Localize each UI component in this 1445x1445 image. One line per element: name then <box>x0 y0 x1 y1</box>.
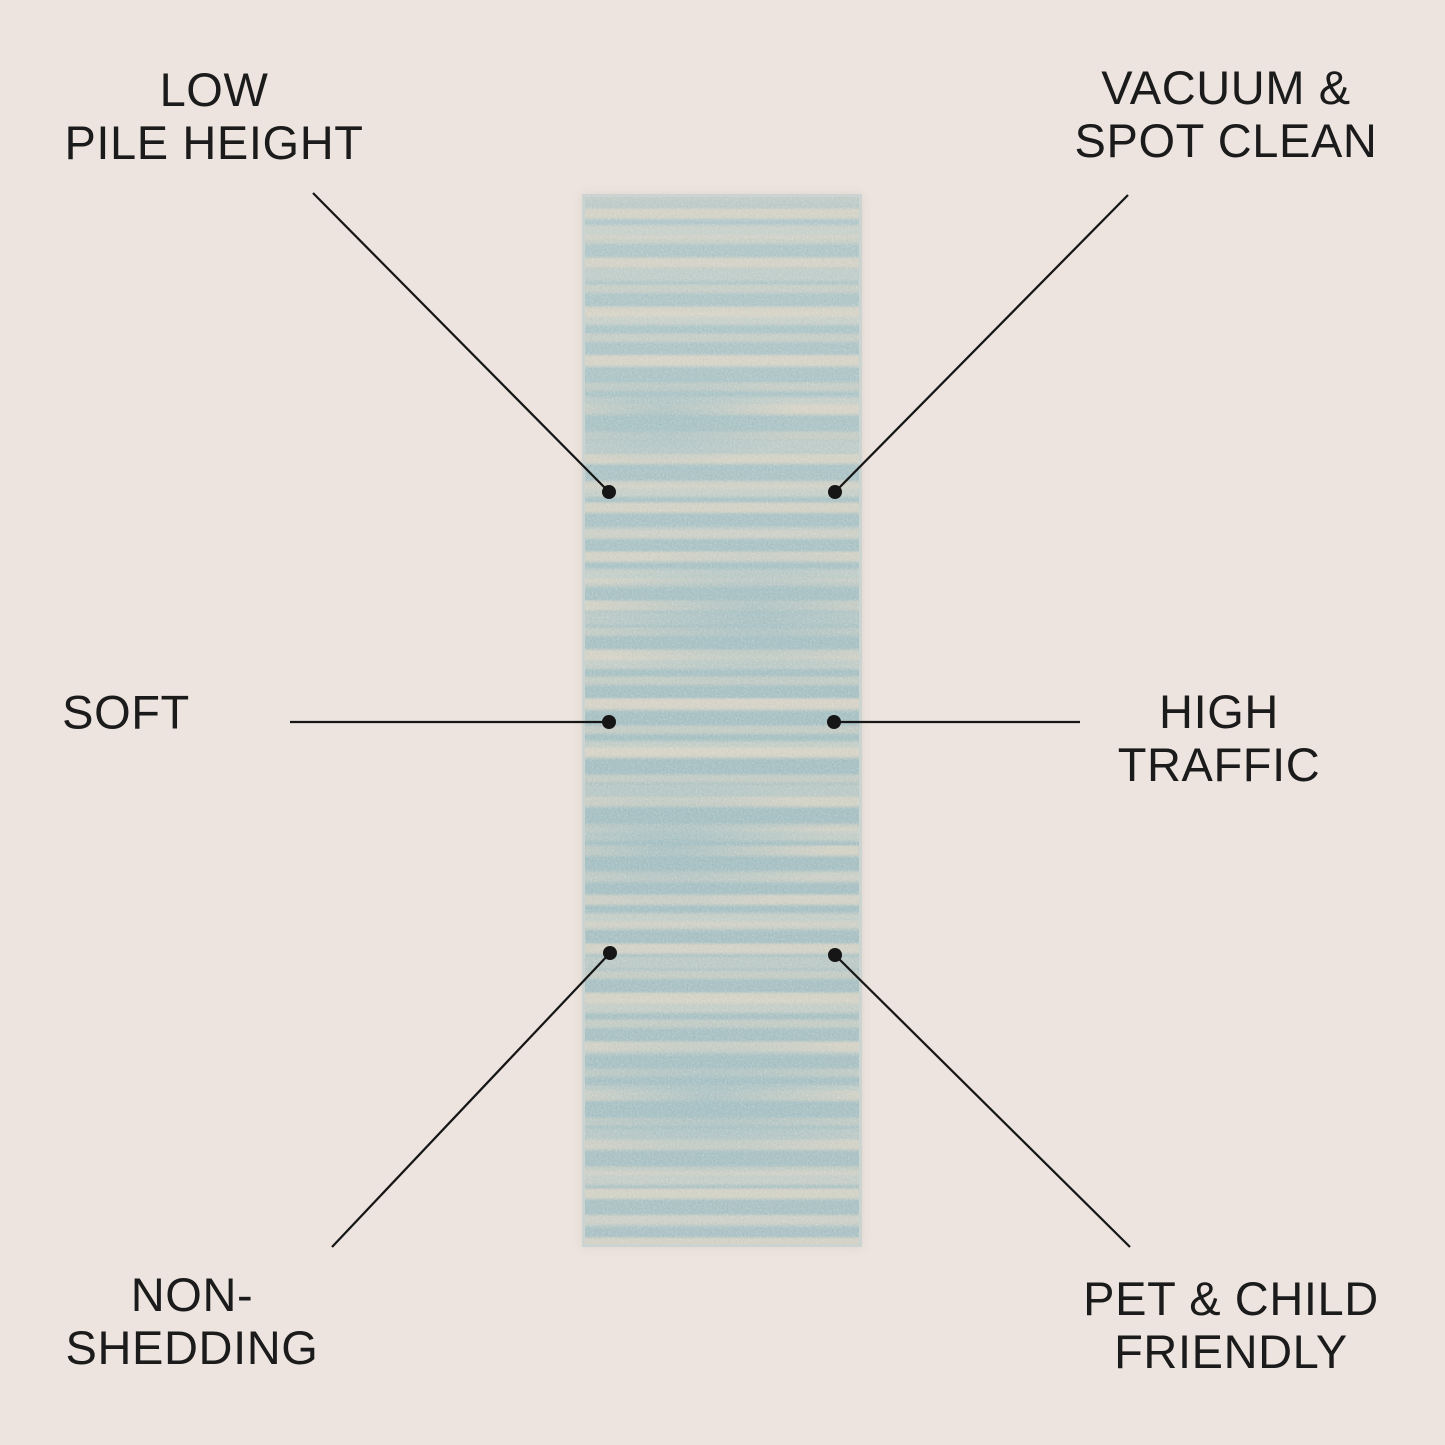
callout-text-line: HIGH <box>1118 685 1321 738</box>
callout-label-non-shedding: NON- SHEDDING <box>66 1268 319 1374</box>
callout-text-line: FRIENDLY <box>1083 1325 1379 1378</box>
callout-label-pet-child-friendly: PET & CHILD FRIENDLY <box>1083 1272 1379 1378</box>
callout-text-line: TRAFFIC <box>1118 738 1321 791</box>
callout-text-line: SOFT <box>62 686 190 739</box>
callout-line-low-pile-height <box>313 193 609 492</box>
callout-label-soft: SOFT <box>62 686 190 739</box>
callout-text-line: NON- <box>66 1268 319 1321</box>
callout-line-pet-child-friendly <box>835 955 1130 1247</box>
callout-label-low-pile-height: LOW PILE HEIGHT <box>64 63 363 169</box>
callout-line-non-shedding <box>332 953 610 1247</box>
callout-label-high-traffic: HIGH TRAFFIC <box>1118 685 1321 791</box>
callout-text-line: VACUUM & <box>1075 61 1378 114</box>
callout-text-line: SHEDDING <box>66 1321 319 1374</box>
callout-text-line: LOW <box>64 63 363 116</box>
callout-label-vacuum-spot-clean: VACUUM & SPOT CLEAN <box>1075 61 1378 167</box>
callout-text-line: SPOT CLEAN <box>1075 114 1378 167</box>
callout-text-line: PET & CHILD <box>1083 1272 1379 1325</box>
rug-image <box>582 194 862 1247</box>
callout-text-line: PILE HEIGHT <box>64 116 363 169</box>
callout-line-vacuum-spot-clean <box>835 195 1128 492</box>
rug-texture-noise <box>585 197 859 1244</box>
infographic-canvas: LOW PILE HEIGHT VACUUM & SPOT CLEAN SOFT… <box>0 0 1445 1445</box>
